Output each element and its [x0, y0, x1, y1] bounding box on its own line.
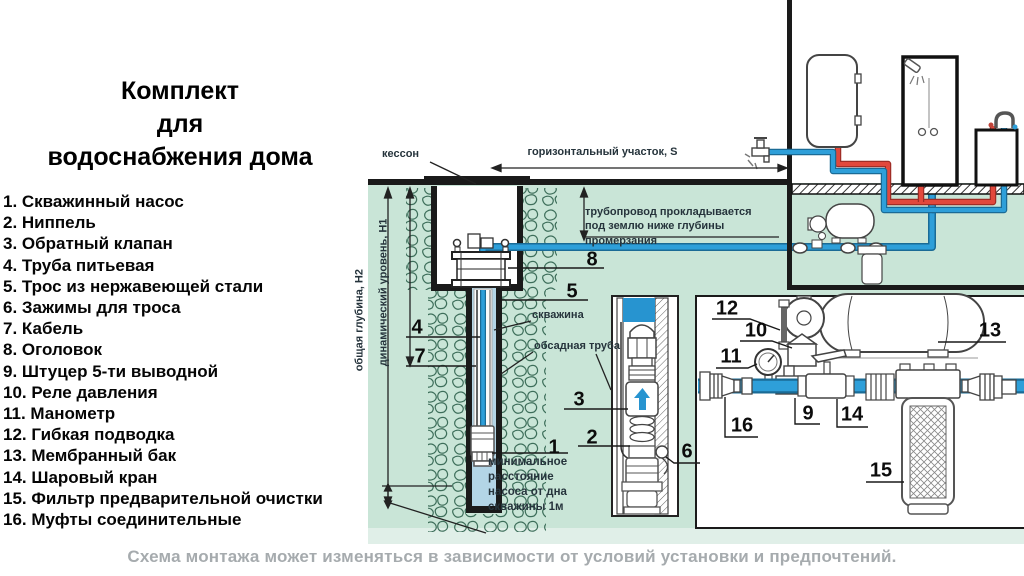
legend-item: 11. Манометр [3, 403, 367, 424]
callout-1: 1 [548, 437, 559, 460]
legend-item: 13. Мембранный бак [3, 445, 367, 466]
wellhead [452, 234, 510, 287]
label-total-depth: общая глубина, Н2 [353, 269, 367, 371]
legend-item: 14. Шаровый кран [3, 467, 367, 488]
callout-5: 5 [566, 281, 577, 304]
legend-item: 7. Кабель [3, 318, 367, 339]
legend-item: 10. Реле давления [3, 382, 367, 403]
legend-item: 15. Фильтр предварительной очистки [3, 488, 367, 509]
shower-cabin [903, 57, 957, 185]
legend-item: 2. Ниппель [3, 212, 367, 233]
pre-filter [896, 364, 960, 514]
legend-item: 6. Зажимы для троса [3, 297, 367, 318]
legend-item: 9. Штуцер 5-ти выводной [3, 361, 367, 382]
legend-item: 4. Труба питьевая [3, 255, 367, 276]
label-kesson: кессон [382, 147, 419, 161]
callout-9: 9 [802, 403, 813, 426]
pump-detail-panel [612, 296, 678, 516]
label-well: скважина [532, 308, 584, 322]
label-dynamic-level: динамический уровень, Н1 [377, 219, 391, 367]
legend-item: 3. Обратный клапан [3, 233, 367, 254]
cable-clamp [656, 446, 668, 458]
membrane-tank [820, 294, 984, 358]
outdoor-tap-icon [745, 138, 769, 169]
infographic-water-supply-kit: Комплект для водоснабжения дома 1. Скваж… [0, 0, 1024, 576]
callout-3: 3 [573, 389, 584, 412]
faucet-icon [996, 113, 1013, 128]
label-pipeline-note: трубопровод прокладывается под землю ниж… [585, 205, 795, 248]
legend-item: 5. Трос из нержавеющей стали [3, 276, 367, 297]
callout-2: 2 [586, 427, 597, 450]
callout-6: 6 [681, 441, 692, 464]
label-min-distance: минимальное расстояние насоса от дна скв… [488, 455, 567, 515]
callout-4: 4 [411, 317, 422, 340]
corrugated-connector [866, 374, 894, 400]
callout-8: 8 [586, 249, 597, 272]
sink [976, 113, 1018, 185]
water-heater [807, 55, 861, 147]
callout-16: 16 [731, 415, 753, 438]
legend-item: 1. Скважинный насос [3, 191, 367, 212]
callout-11: 11 [720, 346, 741, 369]
label-horizontal-section: горизонтальный участок, S [515, 145, 690, 159]
caption: Схема монтажа может изменяться в зависим… [0, 547, 1024, 567]
callout-14: 14 [841, 404, 863, 427]
legend-item: 16. Муфты соединительные [3, 509, 367, 530]
check-valve-arrow-icon [639, 398, 646, 410]
legend-item: 8. Оголовок [3, 339, 367, 360]
page-title: Комплект для водоснабжения дома [0, 75, 360, 174]
callout-13: 13 [979, 320, 1001, 343]
callout-15: 15 [870, 460, 892, 483]
callout-7: 7 [414, 346, 425, 369]
callout-10: 10 [745, 320, 767, 343]
callout-12: 12 [716, 298, 738, 321]
legend-item: 12. Гибкая подводка [3, 424, 367, 445]
label-casing-pipe: обсадная труба [534, 339, 620, 353]
legend-list: 1. Скважинный насос 2. Ниппель 3. Обратн… [3, 191, 367, 530]
